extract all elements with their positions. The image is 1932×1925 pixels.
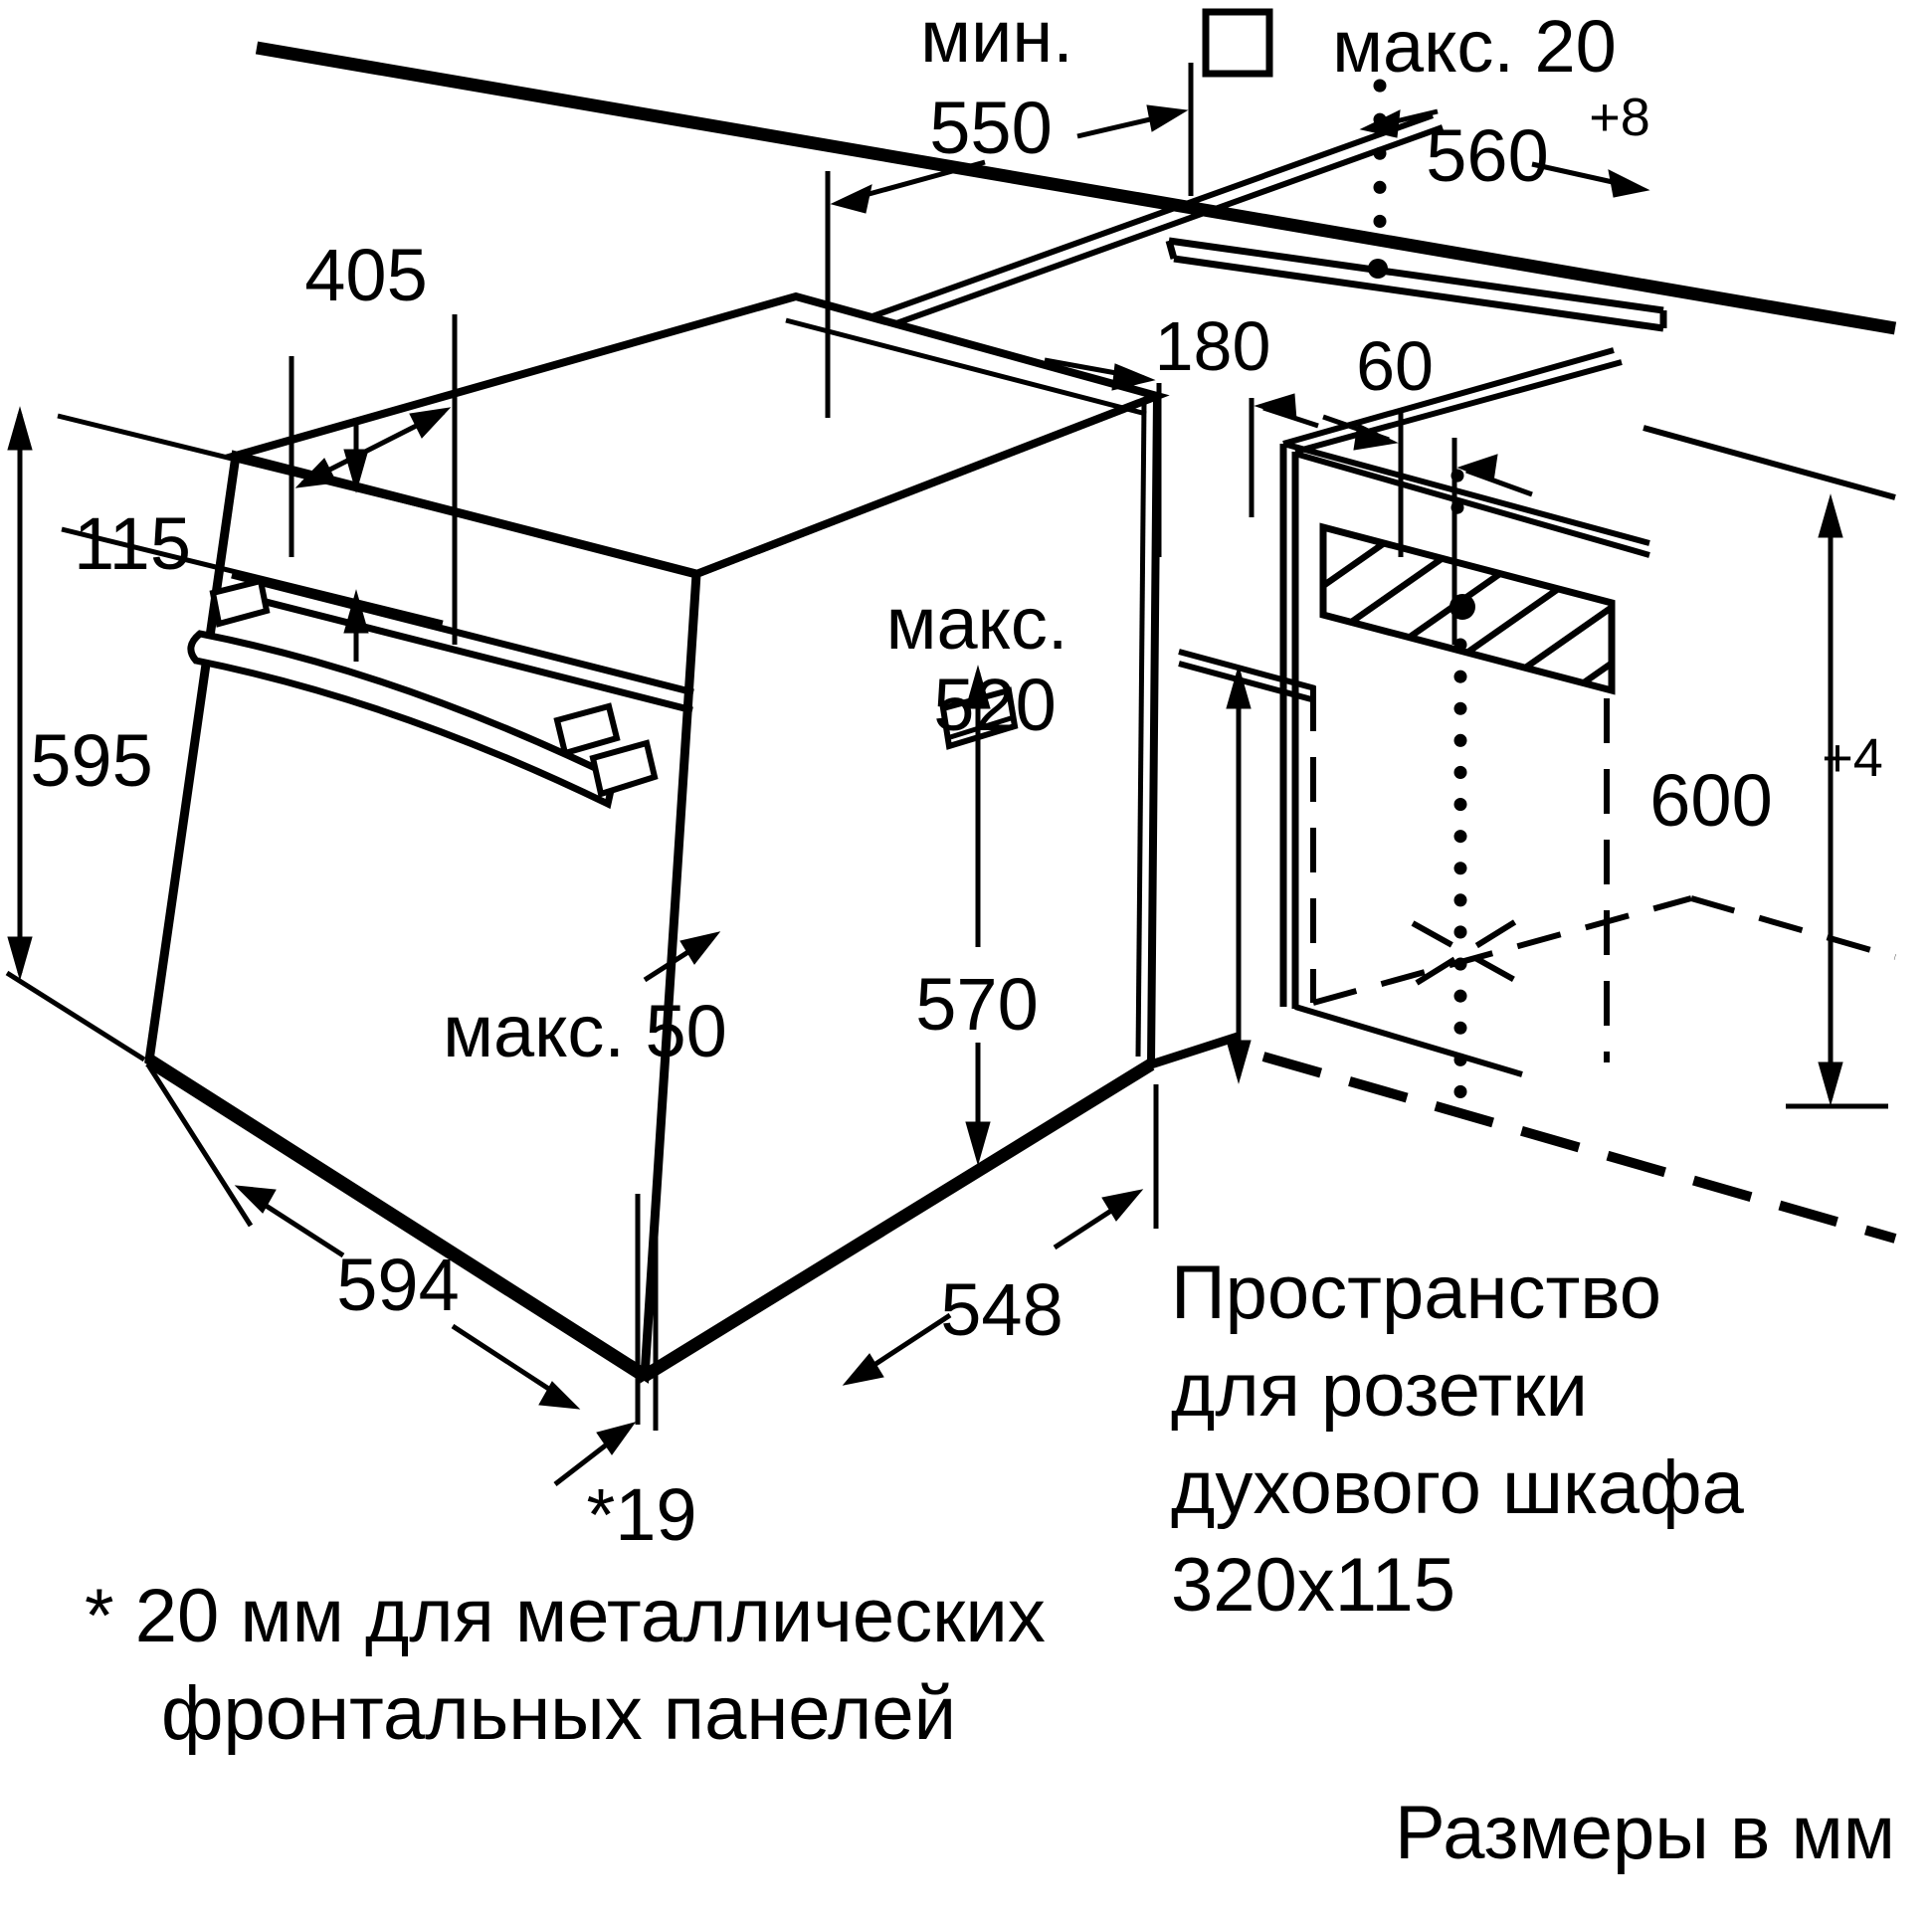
oven-installation-diagram: мин. 550 макс. 20 560 +8 405 115 595 180…	[0, 0, 1932, 1925]
socket-note-line4: 320x115	[1171, 1543, 1455, 1628]
label-180: 180	[1155, 307, 1271, 385]
socket-note-line3: духового шкафа	[1171, 1445, 1745, 1530]
socket-note-line2: для розетки	[1171, 1348, 1588, 1433]
label-548: 548	[940, 1268, 1063, 1351]
label-19: *19	[586, 1473, 696, 1556]
socket-note: Пространство для розетки духового шкафа …	[1171, 1251, 1745, 1628]
units-note: Размеры в мм	[1395, 1791, 1895, 1875]
label-min: мин.	[920, 0, 1073, 78]
label-595: 595	[30, 719, 152, 802]
installation-diagram-page: мин. 550 макс. 20 560 +8 405 115 595 180…	[0, 0, 1932, 1925]
label-560: 560	[1426, 114, 1548, 197]
footnote-line1: * 20 мм для металлических	[85, 1574, 1046, 1658]
label-max20: макс. 20	[1332, 5, 1617, 88]
label-max520-prefix: макс.	[886, 582, 1068, 665]
label-405: 405	[304, 234, 427, 316]
label-115: 115	[74, 502, 191, 585]
label-600: 600	[1649, 759, 1772, 842]
label-600-tolerance: +4	[1822, 728, 1883, 788]
footnote-line2: фронтальных панелей	[161, 1671, 956, 1756]
label-570: 570	[915, 963, 1038, 1046]
rail-reference-dot	[1368, 259, 1388, 279]
footnote: * 20 мм для металлических фронтальных па…	[85, 1574, 1046, 1756]
label-520: 520	[933, 664, 1056, 746]
niche-cabinet	[1151, 350, 1895, 1239]
label-550: 550	[929, 87, 1052, 169]
label-60: 60	[1356, 327, 1434, 405]
label-560-tolerance: +8	[1589, 88, 1650, 147]
label-max50: макс. 50	[443, 990, 727, 1072]
label-594: 594	[336, 1244, 459, 1326]
socket-note-line1: Пространство	[1171, 1251, 1661, 1335]
flatness-square-symbol	[1206, 12, 1269, 74]
